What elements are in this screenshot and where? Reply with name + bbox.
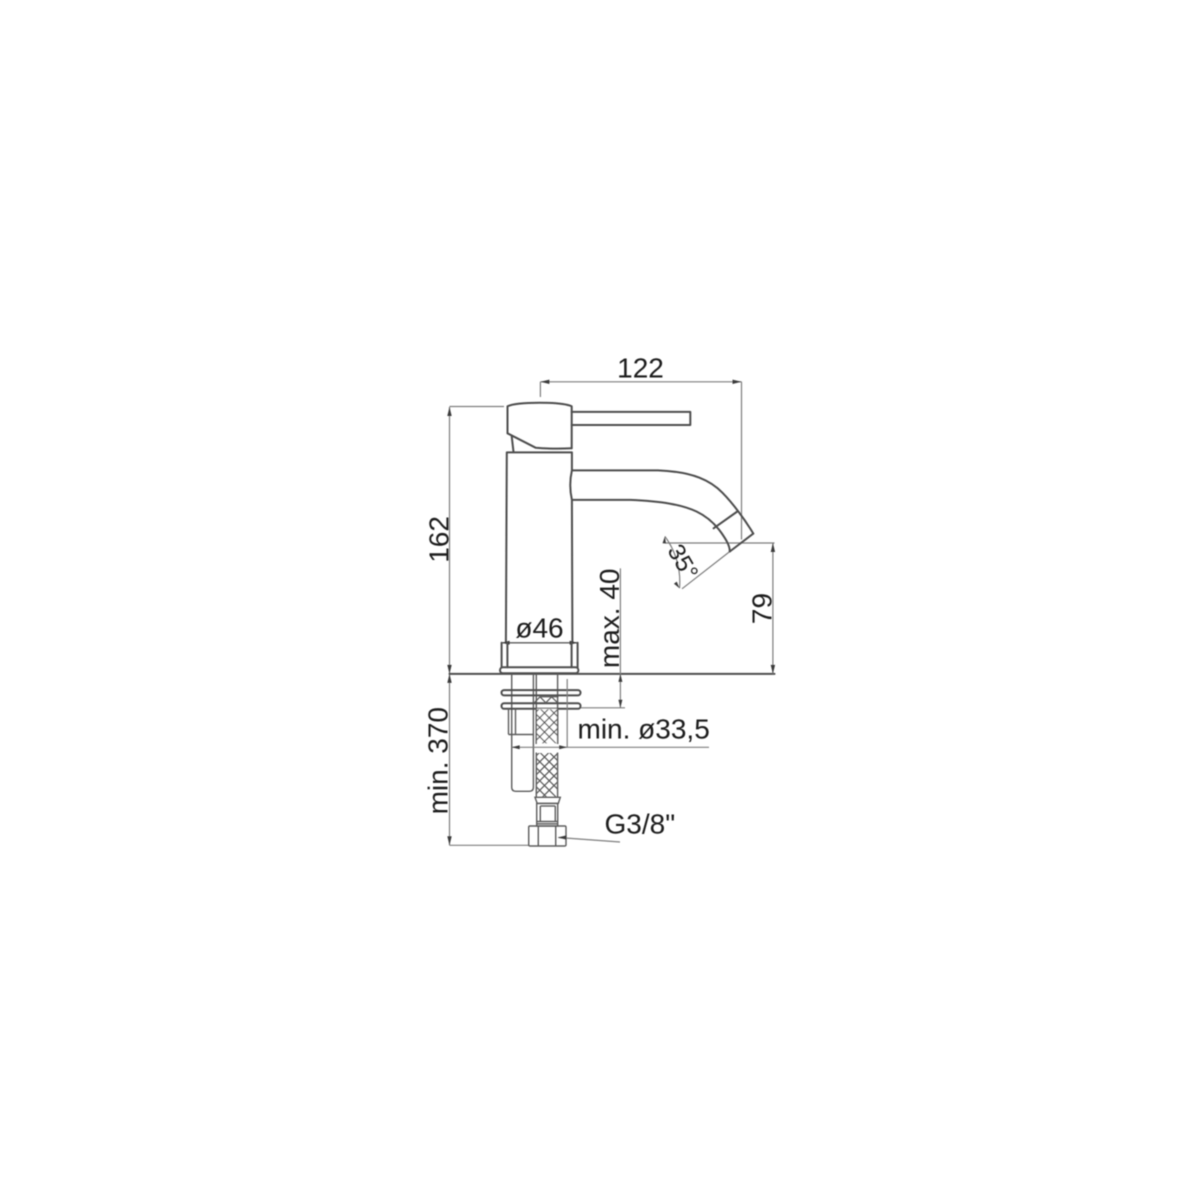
svg-text:35°: 35° bbox=[662, 540, 704, 585]
svg-text:min. ø33,5: min. ø33,5 bbox=[578, 714, 710, 745]
svg-text:79: 79 bbox=[747, 593, 778, 624]
svg-text:max. 40: max. 40 bbox=[594, 568, 625, 668]
svg-text:162: 162 bbox=[423, 516, 454, 563]
svg-text:122: 122 bbox=[617, 352, 664, 383]
svg-text:ø46: ø46 bbox=[515, 613, 563, 644]
svg-text:G3/8": G3/8" bbox=[605, 809, 676, 840]
svg-text:min. 370: min. 370 bbox=[422, 707, 453, 814]
